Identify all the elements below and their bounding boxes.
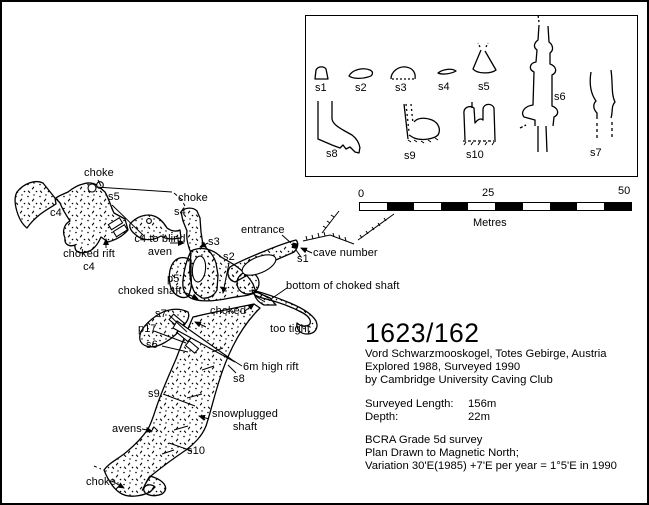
plan-label-s2: s2 <box>223 251 235 264</box>
section-label-s2: s2 <box>355 82 367 94</box>
section-label-s8: s8 <box>326 148 338 160</box>
leader-s8 <box>228 365 236 373</box>
surveyed-length-label: Surveyed Length: <box>365 398 454 411</box>
plan-label-choked: choked <box>210 305 246 318</box>
section-label-s1: s1 <box>315 82 327 94</box>
choke-tail-dashes <box>94 466 101 469</box>
plan-label-p17: p17 <box>138 323 157 336</box>
cave-survey-sheet: s1 s2 s3 s4 s5 s6 s8 s9 s10 s7 0 25 50 M… <box>0 0 649 505</box>
scalebar-unit: Metres <box>473 217 507 229</box>
surveyed-length-value: 156m <box>468 398 496 411</box>
leader-6m-rift <box>234 361 242 366</box>
plan-label-entrance: entrance <box>241 224 285 237</box>
scale-bar-segment <box>577 203 604 210</box>
plan-label-s5: s5 <box>108 191 120 204</box>
plan-label-s8: s8 <box>233 373 245 386</box>
variation-note-line: Variation 30'E(1985) +7'E per year = 1°5… <box>365 460 617 473</box>
scalebar-tick-25: 25 <box>482 187 494 199</box>
north-note-line: Plan Drawn to Magnetic North; <box>365 447 519 460</box>
section-label-s5: s5 <box>478 81 490 93</box>
entrance-marker <box>292 242 299 249</box>
scale-bar-segment <box>468 203 495 210</box>
plan-label-s4: s4 <box>174 206 186 219</box>
plan-label-s3: s3 <box>208 236 220 249</box>
plan-label-cave-number: cave number <box>313 247 378 260</box>
scale-bar-segment <box>387 203 414 210</box>
scale-bar-segment <box>441 203 468 210</box>
plan-label-snowplugged-shaft: snowplugged shaft <box>208 408 282 434</box>
plan-label-avens: avens <box>112 423 142 436</box>
scale-bar-segment <box>360 203 387 210</box>
scalebar-tick-0: 0 <box>358 188 364 200</box>
section-label-s9: s9 <box>404 150 416 162</box>
section-label-s10: s10 <box>466 149 484 161</box>
leader-bottom-choked-shaft <box>271 288 287 299</box>
scale-bar-segment <box>550 203 577 210</box>
plan-label-choke-nw: choke <box>84 167 114 180</box>
plan-label-too-tight: too tight <box>270 323 310 336</box>
plan-label-6m-high-rift: 6m high rift <box>243 361 299 374</box>
cave-number-title: 1623/162 <box>365 318 480 348</box>
plan-label-choke-bottom: choke <box>86 476 116 489</box>
location-line: Vord Schwarzmooskogel, Totes Gebirge, Au… <box>365 348 607 361</box>
depth-label: Depth: <box>365 411 398 424</box>
plan-label-s6: s6 <box>146 339 158 352</box>
explored-line: Explored 1988, Surveyed 1990 <box>365 361 520 374</box>
scale-bar-segment <box>414 203 441 210</box>
section-label-s7: s7 <box>590 147 602 159</box>
passage-west-funnel <box>15 182 56 228</box>
scale-bar-segment <box>604 203 631 210</box>
plan-label-c4-to-blind-aven: c4 to blind aven <box>130 233 190 259</box>
plan-label-s1: s1 <box>297 253 309 266</box>
plan-label-choked-rift-c4: choked rift c4 <box>60 248 118 274</box>
grade-line: BCRA Grade 5d survey <box>365 434 482 447</box>
section-label-s3: s3 <box>395 82 407 94</box>
club-line: by Cambridge University Caving Club <box>365 374 553 387</box>
plan-label-s7: s7 <box>155 308 167 321</box>
plan-label-s10: s10 <box>187 445 205 458</box>
depth-value: 22m <box>468 411 490 424</box>
plan-label-c4-west: c4 <box>50 207 62 220</box>
scale-bar-segment <box>523 203 550 210</box>
scalebar-tick-50: 50 <box>618 185 630 197</box>
plan-label-bottom-of-choked-shaft: bottom of choked shaft <box>286 280 400 293</box>
boulder-west-1 <box>88 184 96 192</box>
scale-bar-segment <box>495 203 522 210</box>
plan-label-choke-mid: choke <box>178 192 208 205</box>
scale-bar <box>359 202 632 211</box>
plan-label-s9: s9 <box>148 388 160 401</box>
section-label-s6: s6 <box>554 91 566 103</box>
plan-label-choked-shaft: choked shaft <box>118 285 182 298</box>
cliff-hachures <box>303 211 394 244</box>
section-label-s4: s4 <box>438 81 450 93</box>
boulder-connector <box>147 219 152 224</box>
